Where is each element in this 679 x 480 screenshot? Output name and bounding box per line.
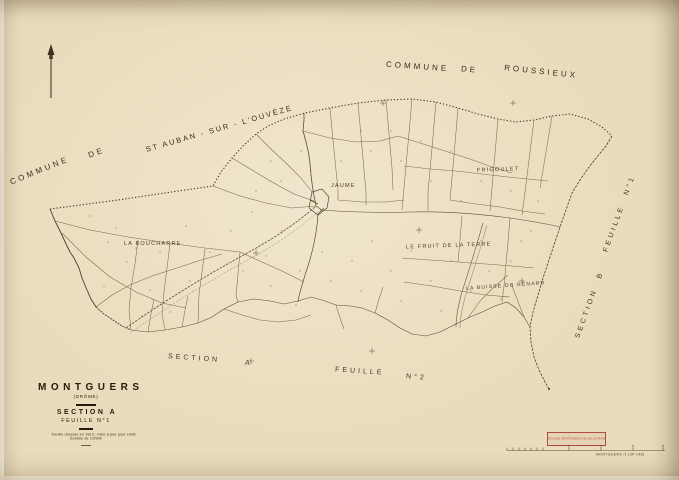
survey-crosses: [248, 100, 525, 364]
cadastral-map-sheet: COMMUNE DE ROUSSIEUX COMMUNE DE ST AUBAN…: [0, 0, 679, 480]
title-rule: [76, 404, 96, 406]
title-block: MONTGUERS (DRÔME) SECTION A FEUILLE N°1 …: [34, 382, 138, 446]
hamlet-cluster: [309, 189, 329, 215]
bottom-section-letter: A: [245, 360, 253, 368]
map-note-scale: Échelle de 1/2500: [52, 437, 121, 441]
map-title-commune: MONTGUERS: [34, 382, 138, 393]
archive-reference: MONTGUERS /1 (3P 148): [596, 453, 644, 457]
place-label-jaume: JAUME: [331, 183, 356, 189]
map-title-feuille: FEUILLE N°1: [34, 418, 138, 424]
title-rule-2: [79, 428, 93, 430]
archive-stamp-text: ARCHIVES DÉPARTEMENTALES DE LA DRÔME: [547, 438, 606, 440]
place-label-boucharre: LA BOUCHARRE: [124, 241, 182, 247]
map-title-section: SECTION A: [34, 409, 138, 416]
neighbor-commune-top-word2: DE: [461, 64, 479, 74]
section-boundary-bottom: [131, 297, 530, 336]
title-dash: [81, 445, 91, 446]
commune-boundary-path: [50, 99, 612, 209]
road-lines: [126, 113, 560, 333]
section-boundary-left: [50, 209, 96, 307]
map-title-departement: (DRÔME): [47, 395, 125, 400]
